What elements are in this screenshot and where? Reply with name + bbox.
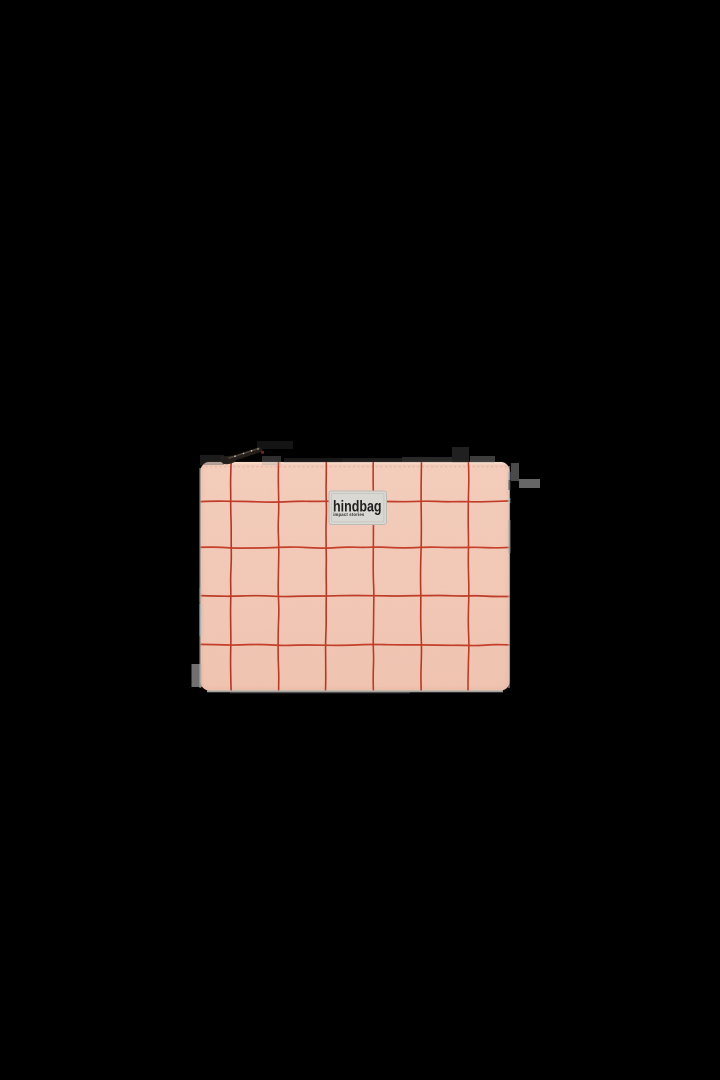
svg-text:impact stories: impact stories	[333, 512, 365, 517]
